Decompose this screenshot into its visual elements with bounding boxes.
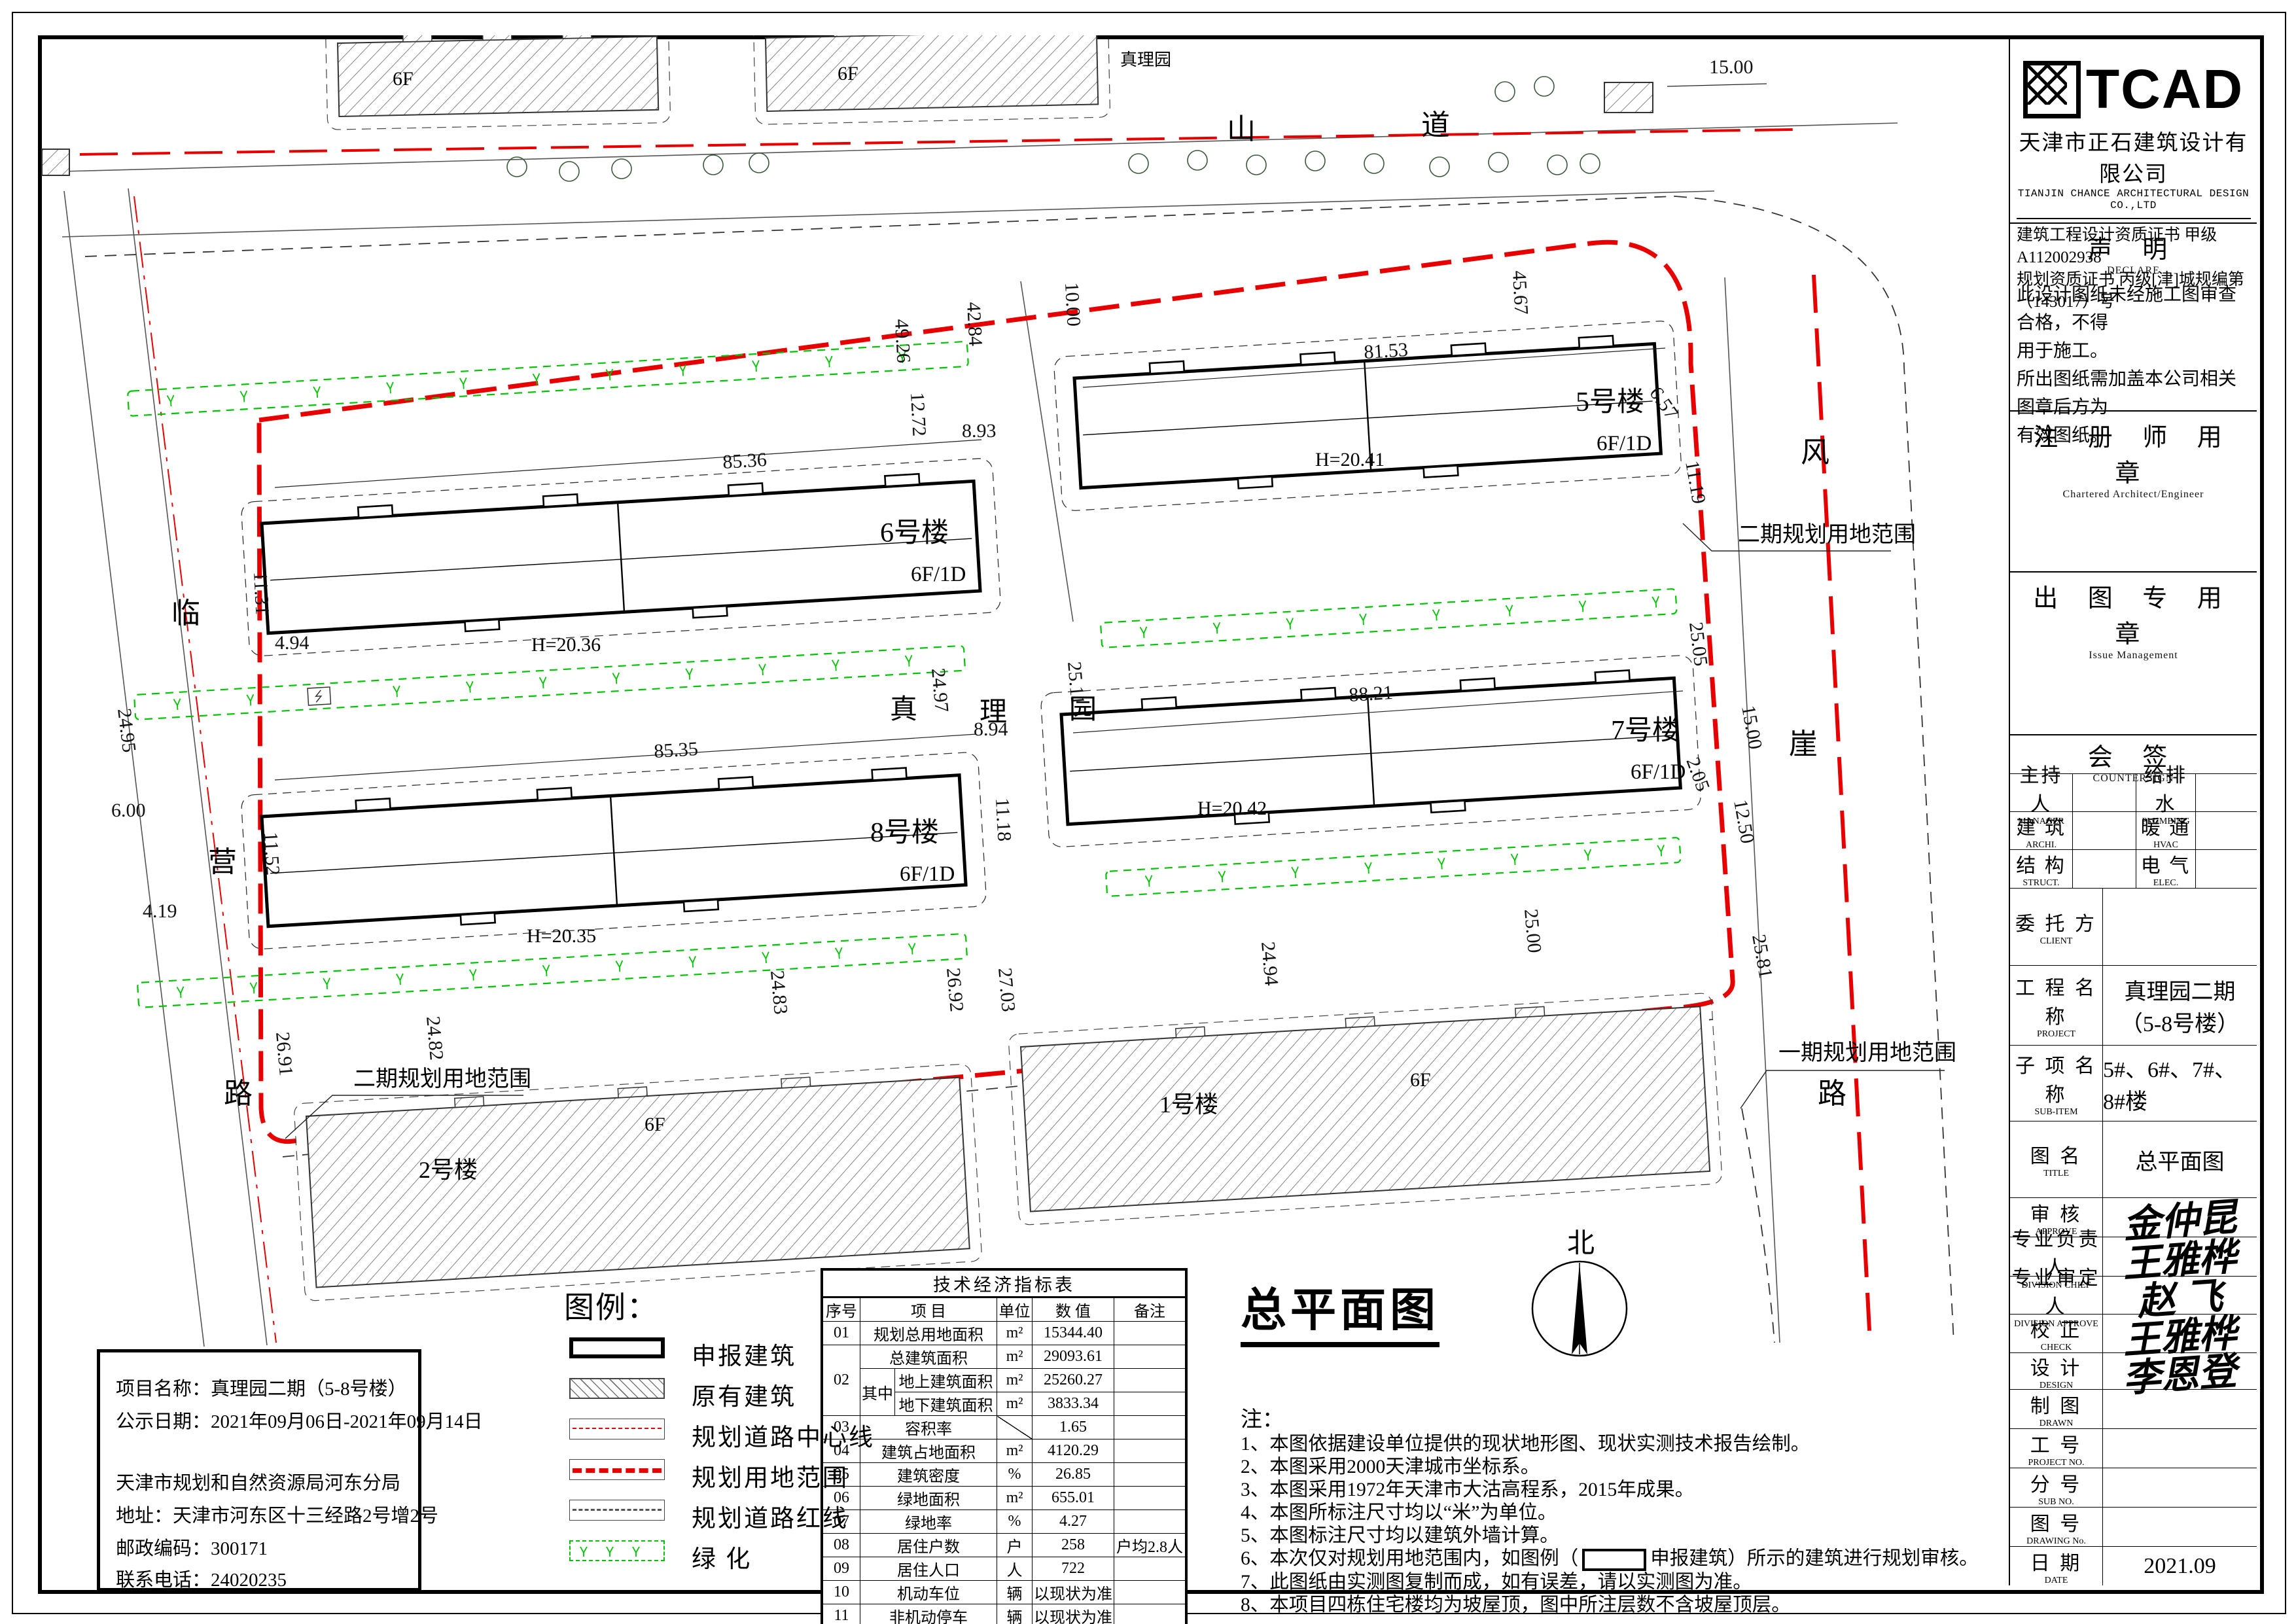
table-cell: % — [997, 1510, 1033, 1534]
existing-building — [42, 149, 69, 175]
legend-label: 规划用地范围 — [692, 1458, 849, 1493]
note-line: 6、本次仅对规划用地范围内，如图例（申报建筑）所示的建筑进行规划审核。 — [1241, 1547, 1725, 1571]
building-notch — [537, 788, 572, 800]
table-cell — [1114, 1369, 1187, 1392]
table-row: 10机动车位辆以现状为准 — [822, 1581, 1186, 1604]
architect-stamp-en: Chartered Architect/Engineer — [2010, 489, 2257, 501]
building-notch — [1579, 336, 1614, 348]
row-value: 5#、6#、7#、8#楼 — [2103, 1046, 2257, 1121]
row-label: 图 号DRAWING No. — [2010, 1508, 2103, 1546]
green-sprig-icon — [393, 686, 400, 697]
dimension-text: 25.05 — [1685, 621, 1712, 667]
titleblock-row-drawing-no-: 图 号DRAWING No. — [2010, 1507, 2257, 1546]
road-edge — [64, 191, 204, 1347]
declare-title: 声 明 — [2010, 229, 2257, 265]
row-label: 设 计DESIGN — [2010, 1353, 2103, 1389]
green-sprig-icon — [1584, 849, 1591, 861]
dimension-text: 26.91 — [272, 1031, 297, 1077]
green-sprig-icon — [543, 965, 550, 977]
titleblock-row-client: 委 托 方CLIENT — [2010, 888, 2257, 965]
dimension-text: 11.52 — [260, 832, 283, 876]
compound-name: 真理园 — [1120, 50, 1171, 69]
tree-icon — [1188, 150, 1207, 170]
road-edge — [1021, 281, 1073, 622]
legend-item: 绿 化 — [564, 1538, 930, 1564]
titleblock-row-project-no-: 工 号PROJECT NO. — [2010, 1428, 2257, 1468]
building-floors: 6F/1D — [911, 563, 966, 586]
building-notch — [1451, 344, 1486, 356]
north-arrow-icon — [1522, 1250, 1640, 1374]
titleblock-row-sub-item: 子 项 名 称SUB-ITEM5#、6#、7#、8#楼 — [2010, 1045, 2257, 1121]
table-cell: 26.85 — [1033, 1463, 1114, 1487]
green-sprig-icon — [612, 673, 620, 684]
compound-name: 园 — [1069, 695, 1097, 725]
building-floors: 6F/1D — [1597, 432, 1651, 455]
legend-item: 规划用地范围 — [564, 1456, 930, 1483]
company-name-en: TIANJIN CHANCE ARCHITECTURAL DESIGN CO.,… — [2010, 188, 2257, 211]
row-label: 工 程 名 称PROJECT — [2010, 966, 2103, 1045]
company-logo-text: TCAD — [2086, 58, 2244, 121]
value-text: 总平面图 — [2136, 1144, 2225, 1176]
green-sprig-icon — [752, 361, 760, 372]
road-name-char: 风 — [1801, 436, 1829, 468]
note-text: 申报建筑）所示的建筑进行规划审核。 — [1650, 1548, 1979, 1569]
green-sprig-icon — [470, 969, 477, 981]
building-notch — [1150, 361, 1184, 374]
table-cell: 以现状为准 — [1033, 1604, 1114, 1624]
drawing-sheet: 15.0049.2642.8410.0045.6785.368.9312.728… — [0, 0, 2296, 1624]
legend: 图例： 申报建筑原有建筑规划道路中心线规划用地范围规划道路红线绿 化 — [564, 1284, 930, 1327]
dimension-text: 27.03 — [994, 967, 1019, 1013]
building-notch — [356, 798, 391, 811]
green-sprig-icon — [247, 694, 254, 706]
table-cell: 以现状为准 — [1033, 1581, 1114, 1604]
table-cell: 户均2.8人 — [1114, 1534, 1187, 1557]
row-value — [2103, 1468, 2257, 1507]
building-floors: 6F/1D — [1631, 760, 1686, 784]
building-name: 7号楼 — [1611, 716, 1680, 746]
building-notch — [728, 484, 763, 496]
declared-building-symbol — [1582, 1549, 1646, 1571]
row-label: 子 项 名 称SUB-ITEM — [2010, 1046, 2103, 1121]
issue-stamp-title: 出 图 专 用 章 — [2010, 578, 2257, 650]
discipline-label: 暖 通HVAC — [2136, 811, 2195, 849]
building-notch — [543, 494, 578, 506]
road-name-char: 路 — [1818, 1078, 1846, 1110]
green-sprig-icon — [387, 382, 394, 394]
road-centerline-red — [80, 130, 1793, 154]
table-header: 备注 — [1114, 1297, 1187, 1322]
declared-building — [241, 752, 987, 949]
dimension-text: 24.83 — [766, 970, 792, 1015]
green-strip — [1106, 838, 1681, 896]
dimension-text: 11.19 — [1681, 459, 1710, 505]
legend-label: 规划道路中心线 — [692, 1417, 875, 1453]
table-cell — [1114, 1345, 1187, 1369]
boundary-label: 二期规划用地范围 — [1738, 522, 1916, 547]
green-sprig-icon — [250, 982, 257, 994]
boundary-label: 一期规划用地范围 — [1778, 1040, 1956, 1065]
row-label: 制 图DRAWN — [2010, 1390, 2103, 1428]
value-text: 5#、6#、7#、8#楼 — [2103, 1051, 2257, 1116]
building-name: 5号楼 — [1576, 387, 1644, 417]
utility-box — [308, 687, 330, 705]
tree-icon — [507, 157, 527, 177]
table-cell: 15344.40 — [1033, 1322, 1114, 1345]
row-value: 真理园二期（5-8号楼） — [2103, 966, 2257, 1045]
notice-project-name: 项目名称：真理园二期（5-8号楼） — [116, 1373, 407, 1401]
existing-building-floors: 6F — [1410, 1069, 1431, 1091]
notes-title: 注： — [1241, 1402, 1725, 1433]
titleblock-row-drawn: 制 图DRAWN — [2010, 1389, 2257, 1428]
note-line: 1、本图依据建设单位提供的现状地形图、现状实测技术报告绘制。 — [1241, 1433, 1725, 1456]
green-sprig-icon — [397, 974, 404, 985]
green-sprig-icon — [1652, 596, 1659, 608]
row-label: 工 号PROJECT NO. — [2010, 1429, 2103, 1468]
note-text: 6、本次仅对规划用地范围内，如图例（ — [1241, 1548, 1578, 1569]
building-name: 6号楼 — [880, 518, 949, 548]
green-sprig-icon — [1579, 601, 1586, 612]
green-sprig-icon — [1360, 614, 1367, 626]
green-strip — [128, 342, 968, 416]
green-sprig-icon — [1213, 622, 1220, 634]
green-sprig-icon — [1145, 875, 1152, 887]
building-height: H=20.35 — [527, 925, 596, 947]
issue-stamp-en: Issue Management — [2010, 650, 2257, 662]
value-text-2: （5-8号楼） — [2121, 1006, 2239, 1038]
table-cell — [1114, 1322, 1187, 1345]
green-sprig-icon — [689, 956, 696, 968]
table-cell: 10 — [822, 1581, 860, 1604]
road-name-char: 临 — [171, 597, 200, 629]
declared-symbol — [569, 1337, 665, 1358]
green-sprig-icon — [167, 395, 174, 407]
green-sprig-icon — [826, 356, 833, 368]
building-notch — [461, 913, 495, 925]
road-name-char: 营 — [208, 846, 237, 878]
table-header: 单位 — [997, 1297, 1033, 1322]
road-edge — [62, 123, 1898, 171]
table-cell — [1114, 1392, 1187, 1416]
compound-name: 真 — [890, 695, 917, 725]
company-section: TCAD 天津市正石建筑设计有限公司 TIANJIN CHANCE ARCHIT… — [2010, 39, 2257, 222]
discipline-signature-cell — [2195, 811, 2257, 849]
dimension-text: 2.05 — [1682, 754, 1714, 794]
tree-icon — [1364, 154, 1384, 173]
discipline-label: 电 气ELEC. — [2136, 849, 2195, 888]
table-row: 11非机动停车辆以现状为准 — [822, 1604, 1186, 1624]
existing-building — [1008, 993, 1722, 1225]
green-sprig-icon — [177, 987, 184, 998]
row-value — [2103, 1390, 2257, 1428]
building-notch — [1142, 697, 1176, 710]
green-sprig-icon — [467, 681, 474, 693]
table-cell: 655.01 — [1033, 1487, 1114, 1510]
phase1-boundary — [85, 196, 1675, 256]
row-label: 委 托 方CLIENT — [2010, 889, 2103, 965]
titleblock-row-title: 图 名TITLE总平面图 — [2010, 1121, 2257, 1197]
architect-stamp-section: 注 册 师 用 章 Chartered Architect/Engineer — [2010, 410, 2257, 571]
legend-item: 申报建筑 — [564, 1335, 930, 1361]
building-notch — [465, 620, 499, 631]
titleblock-row-design: 设 计DESIGN李恩登 — [2010, 1352, 2257, 1389]
building-notch — [718, 777, 753, 789]
divider — [2017, 218, 2251, 219]
discipline-signature-cell — [2072, 773, 2136, 811]
dimension-text: 4.94 — [275, 632, 309, 654]
existing-symbol — [569, 1378, 665, 1399]
value-text: 2021.09 — [2144, 1554, 2216, 1579]
issue-stamp-section: 出 图 专 用 章 Issue Management — [2010, 571, 2257, 734]
discipline-signature-cell — [2072, 811, 2136, 849]
existing-building-name: 2号楼 — [419, 1157, 478, 1183]
green-sprig-icon — [762, 952, 769, 964]
existing-building-floors: 6F — [645, 1114, 665, 1135]
table-cell: % — [997, 1463, 1033, 1487]
dimension-text: 12.72 — [906, 392, 930, 437]
table-cell: m² — [997, 1369, 1033, 1392]
dimension-line — [275, 734, 976, 780]
compound-name: 理 — [980, 697, 1007, 728]
table-cell — [1114, 1604, 1187, 1624]
green-sprig-icon — [323, 978, 330, 990]
green-sprig-icon — [1657, 845, 1665, 856]
legend-label: 规划道路红线 — [692, 1498, 849, 1534]
table-cell: 户 — [997, 1534, 1033, 1557]
row-value: 李恩登 — [2103, 1353, 2257, 1389]
building-height: H=20.36 — [531, 634, 601, 656]
titleblock-row-sub-no-: 分 号SUB NO. — [2010, 1468, 2257, 1507]
green-strip — [1101, 589, 1677, 648]
table-cell: 722 — [1033, 1557, 1114, 1581]
note-line: 5、本图标注尺寸均以建筑外墙计算。 — [1241, 1525, 1725, 1547]
notice-authority: 天津市规划和自然资源局河东分局 — [116, 1468, 400, 1495]
existing-building — [754, 35, 1110, 124]
green-sprig-icon — [836, 947, 843, 959]
dimension-text: 45.67 — [1508, 270, 1532, 315]
building-notch — [1431, 801, 1466, 813]
boundary-symbol — [569, 1459, 665, 1480]
dimension-text: 25.00 — [1520, 908, 1545, 954]
building-notch — [872, 768, 907, 780]
table-cell: m² — [997, 1439, 1033, 1463]
page-title: 总平面图 — [1241, 1273, 1439, 1347]
table-cell: 人 — [997, 1557, 1033, 1581]
building-notch — [1460, 679, 1495, 691]
green-symbol — [569, 1540, 665, 1561]
legend-item: 规划道路中心线 — [564, 1416, 930, 1442]
table-cell: m² — [997, 1322, 1033, 1345]
dimension-text: 81.53 — [1363, 339, 1408, 363]
tree-icon — [612, 159, 631, 179]
company-logo-icon — [2023, 61, 2081, 118]
dimension-text: 6.00 — [111, 800, 146, 821]
building-notch — [1424, 466, 1458, 478]
existing-building — [1604, 82, 1653, 113]
table-cell: 辆 — [997, 1581, 1033, 1604]
dimension-text: 26.92 — [942, 967, 968, 1013]
legend-label: 申报建筑 — [692, 1336, 796, 1371]
legend-line-sample — [573, 1428, 662, 1429]
row-label: 日 期DATE — [2010, 1547, 2103, 1585]
notice-postcode: 邮政编码：300171 — [116, 1533, 268, 1561]
public-notice-box: 项目名称：真理园二期（5-8号楼） 公示日期：2021年09月06日-2021年… — [97, 1349, 421, 1591]
company-name-cn: 天津市正石建筑设计有限公司 — [2010, 125, 2257, 188]
existing-building-name: 1号楼 — [1159, 1091, 1218, 1118]
tree-icon — [1246, 155, 1266, 175]
dimension-text: 85.36 — [722, 449, 767, 473]
green-sprig-icon — [240, 391, 247, 402]
note-line: 4、本图所标注尺寸均以“米”为单位。 — [1241, 1502, 1725, 1525]
dimension-text: 24.95 — [113, 707, 140, 754]
road-centerline-red — [1814, 275, 1870, 1343]
road-centerline-red — [134, 196, 276, 1343]
road-edge — [128, 188, 267, 1345]
row-value — [2103, 889, 2257, 965]
discipline-label: 建 筑ARCHI. — [2010, 811, 2072, 849]
discipline-label: 主持人MANAGER — [2010, 773, 2072, 811]
existing-building-floors: 6F — [393, 68, 414, 90]
green-sprig-icon — [909, 943, 916, 955]
row-label: 图 名TITLE — [2010, 1121, 2103, 1197]
table-cell: 4120.29 — [1033, 1439, 1114, 1463]
declare-line: 此设计图纸未经施工图审查合格，不得 — [2017, 281, 2252, 337]
building-notch — [684, 900, 718, 911]
road-name-char: 山 — [1227, 113, 1256, 145]
dimension-text: 8.93 — [962, 420, 997, 442]
dimension-text: 49.26 — [891, 319, 914, 364]
green-sprig-icon — [832, 660, 839, 671]
titleblock-row-project: 工 程 名 称PROJECT真理园二期（5-8号楼） — [2010, 965, 2257, 1045]
tree-icon — [749, 153, 769, 173]
centerline-symbol — [569, 1419, 665, 1439]
table-cell: 3833.34 — [1033, 1392, 1114, 1416]
building-notch — [1301, 688, 1335, 700]
note-line: 7、此图纸由实测图复制而成，如有误差，请以实测图为准。 — [1241, 1571, 1725, 1594]
building-notch — [1238, 476, 1273, 488]
legend-label: 原有建筑 — [692, 1377, 796, 1412]
discipline-signature-cell — [2072, 849, 2136, 888]
legend-label: 绿 化 — [692, 1539, 752, 1574]
table-cell: 辆 — [997, 1604, 1033, 1624]
dimension-text: 11.18 — [991, 798, 1015, 842]
table-cell: m² — [997, 1487, 1033, 1510]
tree-icon — [1489, 152, 1508, 172]
row-label: 分 号SUB NO. — [2010, 1468, 2103, 1507]
dimension-text: 15.00 — [1709, 56, 1754, 78]
table-cell — [1114, 1439, 1187, 1463]
green-sprig-icon — [1286, 618, 1294, 630]
table-cell: 非机动停车 — [860, 1604, 997, 1624]
green-sprig-icon — [686, 668, 693, 680]
redline-symbol — [569, 1500, 665, 1521]
building-height: H=20.41 — [1315, 449, 1385, 470]
notes-block: 注： 1、本图依据建设单位提供的现状地形图、现状实测技术报告绘制。2、本图采用2… — [1241, 1402, 1725, 1617]
title-block: TCAD 天津市正石建筑设计有限公司 TIANJIN CHANCE ARCHIT… — [2009, 39, 2257, 1585]
green-sprig-icon — [1506, 605, 1513, 617]
road-name-char: 崖 — [1789, 728, 1818, 760]
green-sprig-icon — [1140, 627, 1147, 639]
dimension-text: 88.21 — [1348, 682, 1393, 706]
table-cell — [1114, 1416, 1187, 1439]
building-floors: 6F/1D — [900, 862, 955, 886]
dimension-line — [1667, 84, 1767, 86]
tree-icon — [1305, 151, 1325, 171]
green-sprig-icon — [313, 387, 321, 398]
building-notch — [885, 474, 919, 486]
boundary-label: 二期规划用地范围 — [353, 1067, 531, 1091]
declare-title-en: DECLARE — [2010, 265, 2257, 277]
existing-building — [326, 35, 671, 130]
table-cell: 4.27 — [1033, 1510, 1114, 1534]
table-cell: m² — [997, 1345, 1033, 1369]
dimension-text: 4.19 — [143, 900, 177, 922]
legend-item: 规划道路红线 — [564, 1497, 930, 1523]
discipline-signature-cell — [2195, 849, 2257, 888]
green-sprig-icon — [173, 699, 181, 711]
existing-building — [294, 1064, 982, 1301]
dimension-text: 12.50 — [1729, 798, 1758, 845]
table-cell — [1114, 1487, 1187, 1510]
table-cell — [1114, 1581, 1187, 1604]
building-notch — [693, 606, 728, 618]
dimension-text: 42.84 — [963, 302, 986, 347]
discipline-label: 给排水PLUMBING — [2136, 773, 2195, 811]
road-edge — [62, 191, 1714, 237]
note-line: 8、本项目四栋住宅楼均为坡屋顶，图中所注层数不含坡屋顶层。 — [1241, 1594, 1725, 1617]
green-sprig-icon — [1218, 871, 1226, 883]
table-cell: 11 — [822, 1604, 860, 1624]
road-name-char: 路 — [224, 1078, 253, 1110]
building-height: H=20.42 — [1197, 798, 1267, 819]
row-label: 校 正CHECK — [2010, 1315, 2103, 1352]
declare-line: 用于施工。 — [2017, 337, 2252, 365]
tree-icon — [1534, 77, 1554, 96]
table-cell: 29093.61 — [1033, 1345, 1114, 1369]
green-sprig-icon — [679, 364, 686, 376]
dimension-text: 24.82 — [422, 1015, 448, 1061]
green-sprig-icon — [1438, 858, 1445, 870]
legend-line-sample — [573, 1468, 662, 1473]
dimension-line — [275, 440, 981, 487]
green-sprig-icon — [906, 655, 913, 667]
road-name-char: 道 — [1421, 109, 1450, 141]
table-cell — [1114, 1510, 1187, 1534]
table-cell: 1.65 — [1033, 1416, 1114, 1439]
notice-publicity-date: 公示日期：2021年09月06日-2021年09月14日 — [116, 1406, 483, 1434]
dimension-text: 25.81 — [1748, 932, 1776, 980]
table-cell: m² — [997, 1392, 1033, 1416]
dimension-text: 24.94 — [1257, 941, 1282, 987]
tree-icon — [1547, 155, 1567, 175]
north-arrow: 北 — [1522, 1221, 1640, 1371]
row-label: 专业审定人DIVISION APPROVE — [2010, 1277, 2103, 1314]
green-sprig-icon — [1433, 609, 1440, 621]
building-notch — [1595, 670, 1630, 682]
table-cell: 258 — [1033, 1534, 1114, 1557]
legend-line-sample — [573, 1509, 662, 1511]
table-cell: 机动车位 — [860, 1581, 997, 1604]
tree-icon — [1430, 157, 1449, 177]
notice-phone: 联系电话：24020235 — [116, 1564, 287, 1592]
legend-item: 原有建筑 — [564, 1375, 930, 1402]
green-sprig-icon — [616, 961, 623, 972]
declared-buildings — [241, 321, 1701, 950]
green-sprig-icon — [460, 378, 467, 389]
note-line: 2、本图采用2000天津城市坐标系。 — [1241, 1456, 1725, 1479]
table-cell: 25260.27 — [1033, 1369, 1114, 1392]
architect-stamp-title: 注 册 师 用 章 — [2010, 417, 2257, 489]
